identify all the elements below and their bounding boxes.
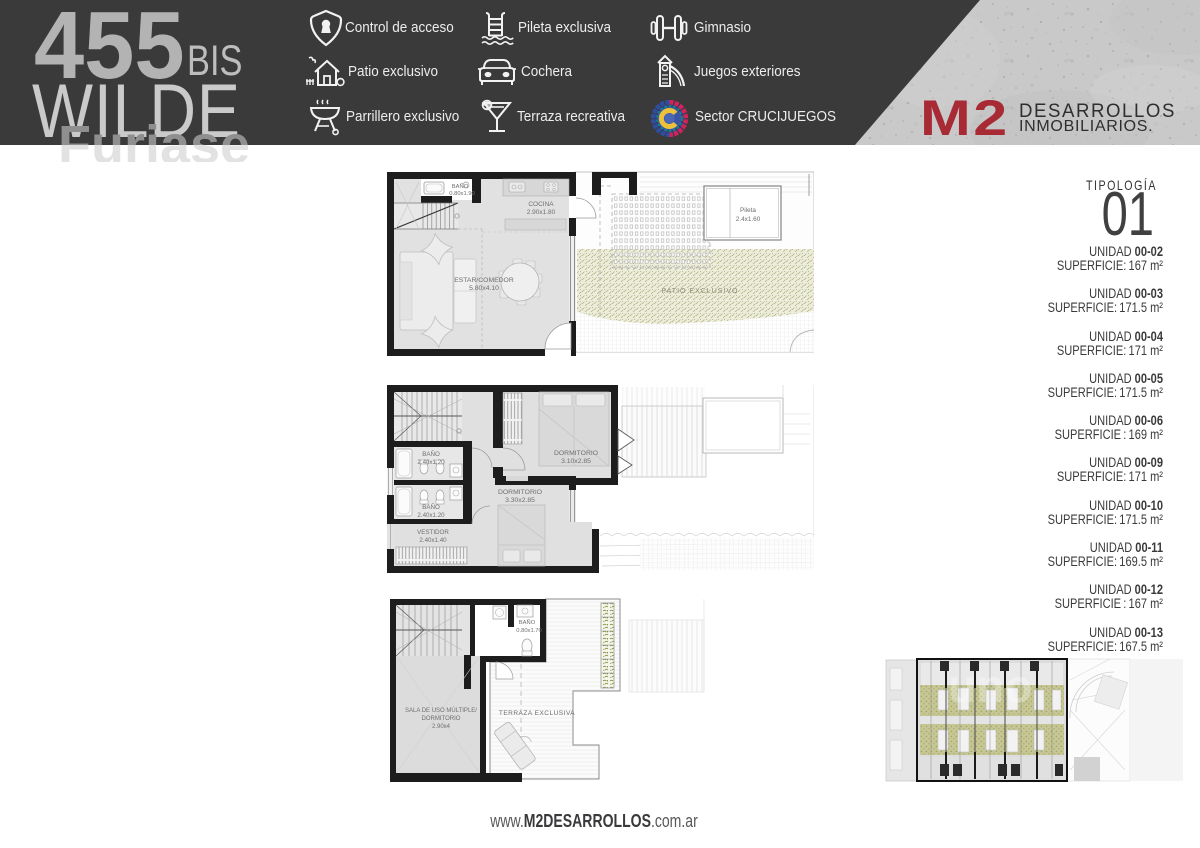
svg-text:ESTAR/COMEDOR: ESTAR/COMEDOR	[454, 277, 514, 284]
svg-text:3.30x2.85: 3.30x2.85	[505, 497, 535, 504]
svg-text:uno: uno	[948, 660, 1032, 712]
svg-text:2.90x1.80: 2.90x1.80	[527, 209, 556, 216]
svg-text:DORMITORIO: DORMITORIO	[498, 489, 542, 496]
svg-text:TERRAZA EXCLUSIVA: TERRAZA EXCLUSIVA	[499, 710, 575, 717]
svg-text:BAÑO: BAÑO	[422, 451, 440, 458]
svg-text:BAÑO: BAÑO	[422, 504, 440, 511]
svg-text:SALA DE USO MÚLTIPLE/: SALA DE USO MÚLTIPLE/	[405, 707, 477, 714]
svg-text:2.40x1.20: 2.40x1.20	[417, 459, 445, 466]
svg-text:BAÑO: BAÑO	[452, 183, 469, 190]
svg-text:DORMITORIO: DORMITORIO	[422, 716, 461, 722]
svg-text:3.10x2.85: 3.10x2.85	[561, 458, 591, 465]
svg-text:2.40x1.20: 2.40x1.20	[417, 512, 445, 519]
svg-text:DORMITORIO: DORMITORIO	[554, 450, 598, 457]
svg-text:2.40x1.40: 2.40x1.40	[419, 537, 447, 544]
svg-text:0.80x1.90: 0.80x1.90	[449, 191, 474, 197]
svg-text:VESTIDOR: VESTIDOR	[417, 529, 449, 536]
svg-text:COCINA: COCINA	[528, 201, 554, 208]
svg-text:PATIO EXCLUSIVO: PATIO EXCLUSIVO	[662, 288, 739, 295]
svg-text:BAÑO: BAÑO	[519, 619, 536, 626]
svg-text:5.80x4.10: 5.80x4.10	[469, 285, 499, 292]
svg-text:0.80x1.70: 0.80x1.70	[516, 628, 541, 634]
svg-text:2.4x1.60: 2.4x1.60	[736, 216, 761, 223]
svg-text:Pileta: Pileta	[740, 207, 756, 214]
svg-text:2.90x4: 2.90x4	[432, 724, 451, 730]
